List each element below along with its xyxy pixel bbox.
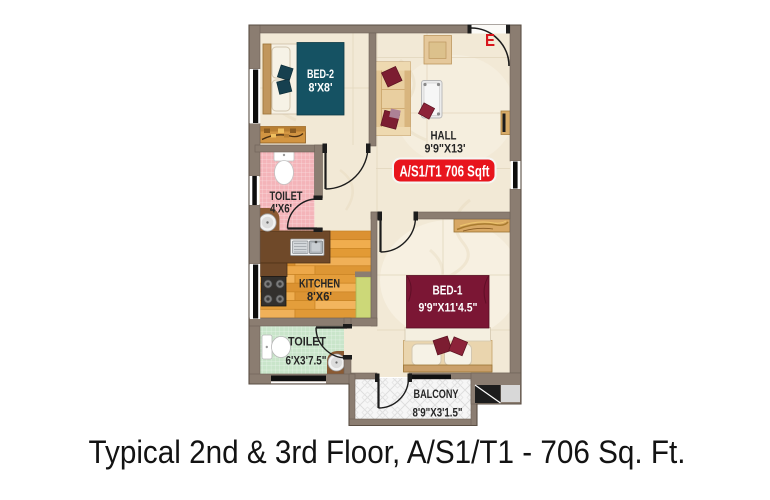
svg-text:Typical 2nd & 3rd Floor, A/S1/: Typical 2nd & 3rd Floor, A/S1/T1 - 706 S… [89, 434, 686, 470]
svg-text:A/S1/T1 706 Sqft: A/S1/T1 706 Sqft [400, 164, 490, 181]
svg-text:HALL: HALL [431, 129, 457, 143]
svg-text:E: E [485, 30, 495, 50]
svg-text:8'X6': 8'X6' [307, 290, 332, 304]
svg-text:BED-1: BED-1 [433, 284, 463, 298]
svg-text:KITCHEN: KITCHEN [299, 277, 340, 291]
svg-text:6'X3'7.5": 6'X3'7.5" [286, 356, 327, 368]
svg-text:8'X8': 8'X8' [309, 81, 333, 95]
svg-text:9'9"X13': 9'9"X13' [425, 144, 466, 156]
svg-text:4'X6': 4'X6' [270, 202, 292, 216]
svg-text:BED-2: BED-2 [307, 67, 334, 81]
svg-text:9'9"X11'4.5": 9'9"X11'4.5" [419, 301, 478, 315]
svg-text:TOILET: TOILET [288, 335, 327, 349]
svg-text:8'9"X3'1.5": 8'9"X3'1.5" [413, 408, 463, 420]
svg-text:BALCONY: BALCONY [414, 387, 459, 401]
